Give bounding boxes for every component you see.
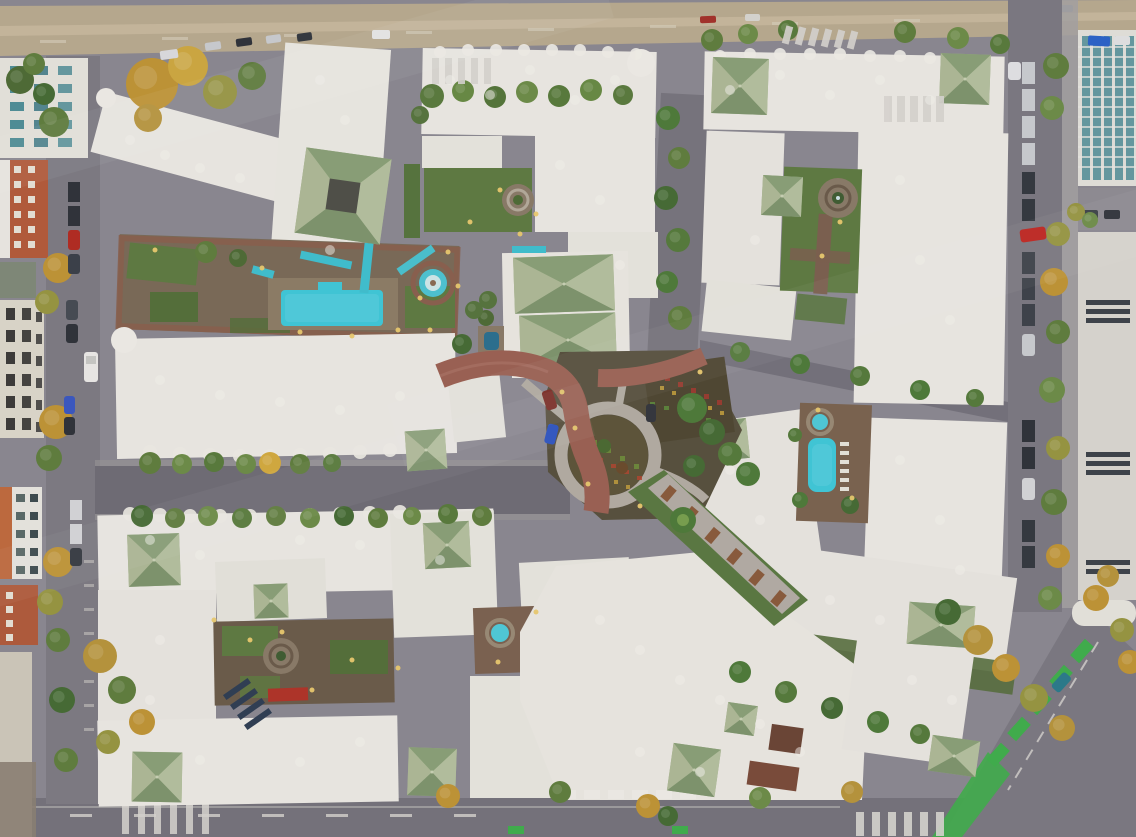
aerial-photo-canvas: [0, 0, 1136, 837]
color-grade: [0, 0, 1136, 837]
aerial-photograph: [0, 0, 1136, 837]
